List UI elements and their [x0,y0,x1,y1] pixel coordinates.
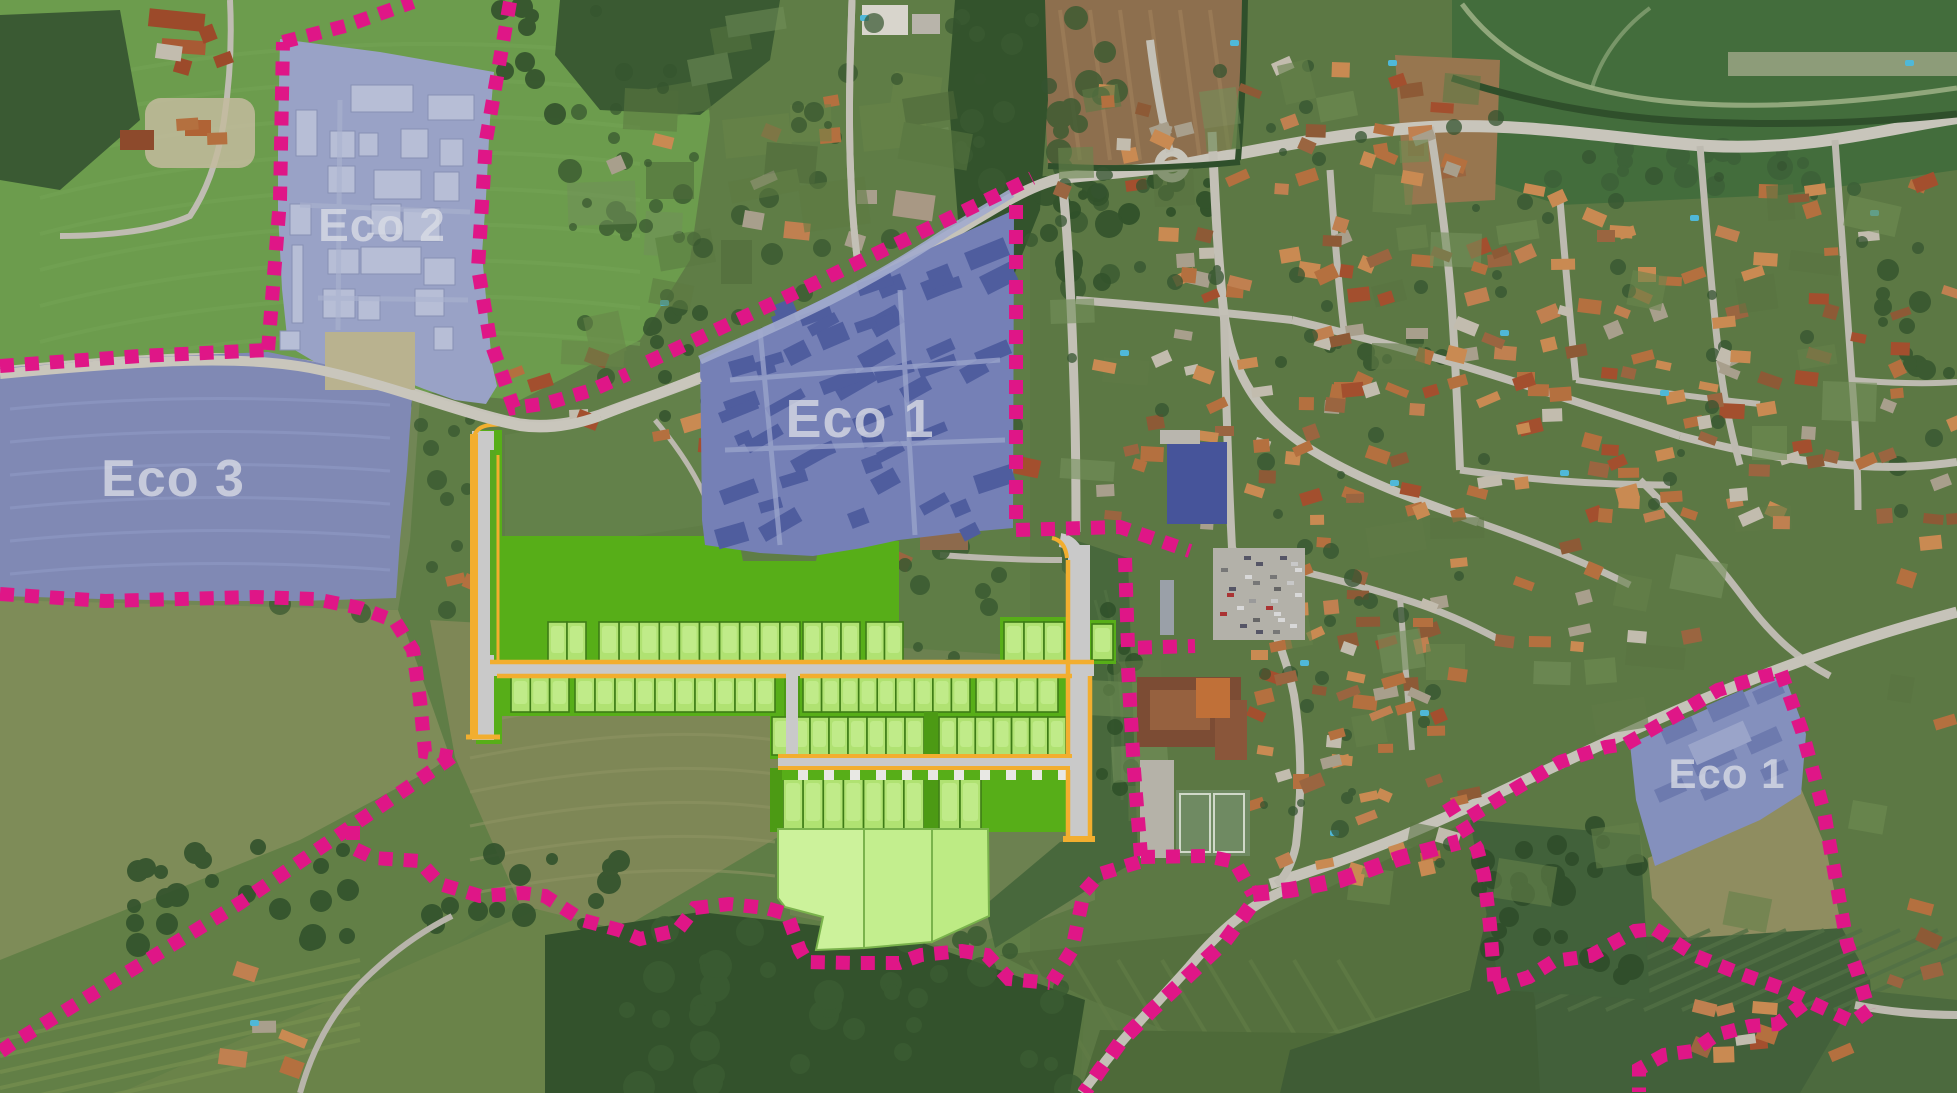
svg-text:Eco 1: Eco 1 [785,389,934,449]
svg-text:Eco 3: Eco 3 [101,450,245,508]
svg-text:Eco 2: Eco 2 [318,199,446,251]
svg-text:Eco 1: Eco 1 [1668,750,1785,797]
